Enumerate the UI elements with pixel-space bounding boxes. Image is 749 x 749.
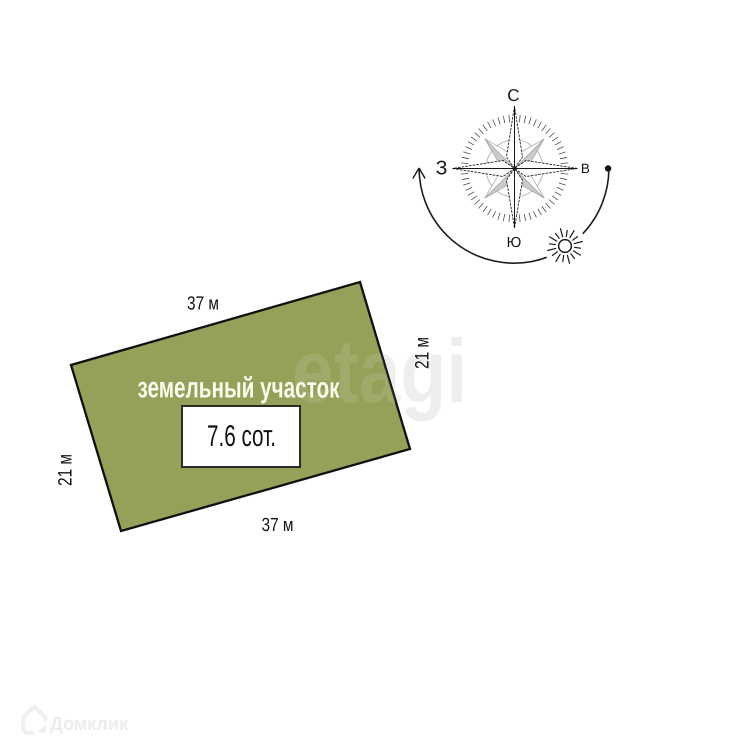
svg-text:21 м: 21 м <box>56 454 77 486</box>
svg-text:21 м: 21 м <box>413 337 434 369</box>
svg-text:Домклик: Домклик <box>50 714 128 735</box>
svg-text:37 м: 37 м <box>187 293 219 314</box>
svg-text:З: З <box>436 157 448 179</box>
svg-text:С: С <box>507 86 519 105</box>
svg-text:В: В <box>581 161 590 176</box>
svg-text:37 м: 37 м <box>261 515 293 536</box>
svg-text:Ю: Ю <box>507 235 522 251</box>
svg-text:земельный участок: земельный участок <box>137 372 339 404</box>
svg-text:7.6 сот.: 7.6 сот. <box>207 420 276 453</box>
